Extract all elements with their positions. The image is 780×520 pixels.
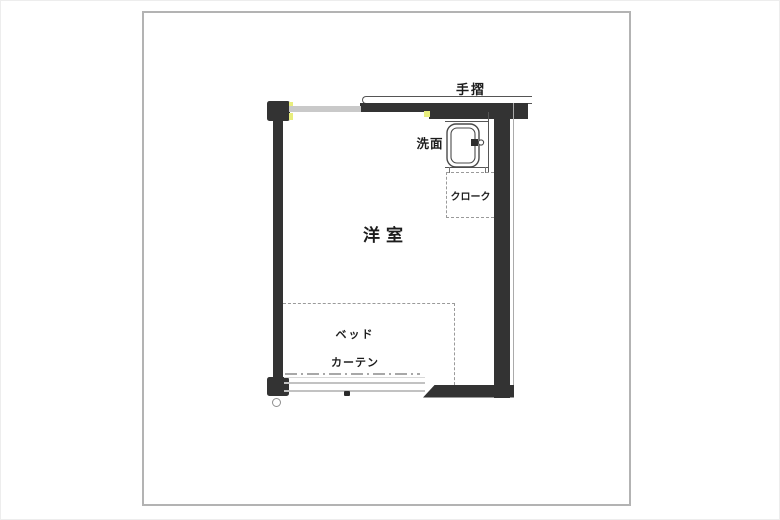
cloak-dashed-area: クローク	[446, 172, 494, 218]
curtain-line	[285, 373, 420, 375]
door-handle-dot	[344, 391, 350, 396]
bottom-wall	[423, 385, 514, 398]
right-wall	[494, 103, 510, 399]
cloak-label: クローク	[451, 188, 491, 203]
window-line	[284, 390, 425, 393]
right-wall-outer-line	[513, 103, 515, 397]
bed-label: ベッド	[336, 330, 375, 341]
corner-circle-marker	[272, 398, 281, 407]
curtain-label: カーテン	[331, 358, 379, 369]
room-label: 洋室	[363, 227, 409, 244]
highlight-mark	[289, 113, 294, 121]
left-wall	[273, 117, 284, 378]
plan-frame	[142, 11, 631, 506]
handrail-label: 手摺	[456, 83, 486, 96]
floorplan-screenshot: 手摺 洗面 クローク 洋室 ベッド カーテン	[0, 0, 780, 520]
top-left-pillar	[267, 101, 290, 121]
highlight-mark	[424, 111, 430, 117]
window-line	[284, 377, 425, 378]
faucet-icon	[471, 139, 478, 146]
washbasin-label: 洗面	[416, 138, 443, 151]
top-window	[289, 106, 361, 112]
washbasin-sink-icon	[444, 119, 488, 171]
window-line	[284, 382, 425, 385]
